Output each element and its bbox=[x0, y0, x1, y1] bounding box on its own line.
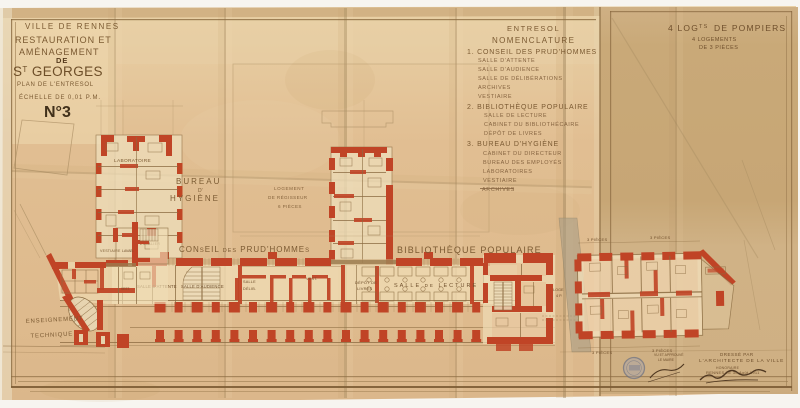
svg-text:HYGIÈNE: HYGIÈNE bbox=[170, 194, 220, 203]
svg-text:LIVRES: LIVRES bbox=[357, 286, 373, 291]
svg-text:SALLE DE LECTURE: SALLE DE LECTURE bbox=[394, 283, 478, 289]
svg-text:3 PIÈCES: 3 PIÈCES bbox=[592, 350, 612, 355]
svg-text:BIBLIOTHÈQUE POPULAIRE: BIBLIOTHÈQUE POPULAIRE bbox=[397, 245, 542, 255]
svg-text:VEST.: VEST. bbox=[121, 287, 130, 291]
svg-text:6 PIÈCES: 6 PIÈCES bbox=[278, 203, 302, 209]
svg-text:SALLE D'ATTENTE: SALLE D'ATTENTE bbox=[478, 58, 535, 64]
svg-text:VESTIAIRE: VESTIAIRE bbox=[100, 249, 121, 253]
svg-text:LOGE: LOGE bbox=[553, 288, 564, 292]
svg-text:4 P.: 4 P. bbox=[556, 294, 562, 298]
svg-text:DÉPÔT DE LIVRES: DÉPÔT DE LIVRES bbox=[484, 130, 542, 137]
svg-text:SALLE DE LECTURE: SALLE DE LECTURE bbox=[484, 113, 547, 119]
svg-text:LABORATOIRES: LABORATOIRES bbox=[483, 169, 532, 175]
svg-text:VESTIAIRE: VESTIAIRE bbox=[478, 94, 512, 100]
svg-text:3 PIÈCES: 3 PIÈCES bbox=[650, 235, 670, 240]
svg-text:PLAN DE L'ENTRESOL: PLAN DE L'ENTRESOL bbox=[17, 82, 94, 88]
svg-text:1. CONSEIL DES PRUD'HOMMES: 1. CONSEIL DES PRUD'HOMMES bbox=[467, 49, 597, 56]
svg-text:VEST.: VEST. bbox=[306, 277, 318, 281]
svg-text:LE MAIRE: LE MAIRE bbox=[658, 358, 675, 362]
svg-text:LOGEMENT: LOGEMENT bbox=[274, 186, 305, 191]
svg-text:ARCHIVES: ARCHIVES bbox=[478, 85, 511, 91]
svg-text:SALLE D'AUDIENCE: SALLE D'AUDIENCE bbox=[478, 67, 540, 73]
svg-text:4 LOGEMENTS: 4 LOGEMENTS bbox=[692, 37, 737, 43]
svg-text:CONSEIL DES PRUD'HOMMES: CONSEIL DES PRUD'HOMMES bbox=[179, 245, 310, 254]
svg-text:DÉPÔT DE: DÉPÔT DE bbox=[355, 280, 377, 285]
svg-text:DE RÉGISSEUR: DE RÉGISSEUR bbox=[268, 194, 308, 200]
svg-text:VESTIAIRE: VESTIAIRE bbox=[483, 178, 517, 184]
svg-text:RESTAURATION ET: RESTAURATION ET bbox=[15, 35, 112, 45]
svg-text:ENTRESOL: ENTRESOL bbox=[507, 24, 560, 33]
svg-text:DE 3 PIÈCES: DE 3 PIÈCES bbox=[699, 44, 738, 51]
svg-text:ARCHIVES: ARCHIVES bbox=[482, 187, 515, 193]
svg-text:BUREAU DES EMPLOYÉS: BUREAU DES EMPLOYÉS bbox=[483, 159, 562, 166]
svg-text:SALLE: SALLE bbox=[243, 280, 256, 284]
svg-text:DÉLIB.: DÉLIB. bbox=[243, 286, 256, 291]
svg-text:CABINET DU DIRECTEUR: CABINET DU DIRECTEUR bbox=[483, 151, 562, 157]
svg-text:NOMENCLATURE: NOMENCLATURE bbox=[492, 36, 575, 45]
svg-text:4 LOGTS DE POMPIERS: 4 LOGTS DE POMPIERS bbox=[668, 23, 786, 33]
svg-text:LABORATOIRE: LABORATOIRE bbox=[114, 158, 151, 164]
svg-text:2. BIBLIOTHÈQUE POPULAIRE: 2. BIBLIOTHÈQUE POPULAIRE bbox=[467, 102, 589, 111]
svg-text:VILLE DE RENNES: VILLE DE RENNES bbox=[25, 22, 120, 31]
svg-text:CABINET DU BIBLIOTHÉCAIRE: CABINET DU BIBLIOTHÉCAIRE bbox=[484, 121, 579, 128]
svg-text:LAVAB.: LAVAB. bbox=[122, 249, 134, 253]
svg-text:N°3: N°3 bbox=[44, 104, 71, 121]
svg-text:VU ET APPROUVÉ: VU ET APPROUVÉ bbox=[654, 352, 684, 357]
svg-text:ÉCHELLE DE 0,01 P.M.: ÉCHELLE DE 0,01 P.M. bbox=[19, 94, 101, 101]
svg-text:DRESSÉ PAR: DRESSÉ PAR bbox=[720, 351, 754, 357]
svg-text:SALLE DE DÉLIBÉRATIONS: SALLE DE DÉLIBÉRATIONS bbox=[478, 75, 563, 82]
svg-text:3. BUREAU D'HYGIÈNE: 3. BUREAU D'HYGIÈNE bbox=[467, 139, 559, 148]
svg-text:BUREAU: BUREAU bbox=[176, 177, 221, 186]
svg-text:SALLE D'AUDIENCE: SALLE D'AUDIENCE bbox=[181, 284, 224, 289]
svg-text:3 PIÈCES: 3 PIÈCES bbox=[587, 237, 607, 242]
svg-text:L'ARCHITECTE DE LA VILLE: L'ARCHITECTE DE LA VILLE bbox=[699, 358, 784, 364]
